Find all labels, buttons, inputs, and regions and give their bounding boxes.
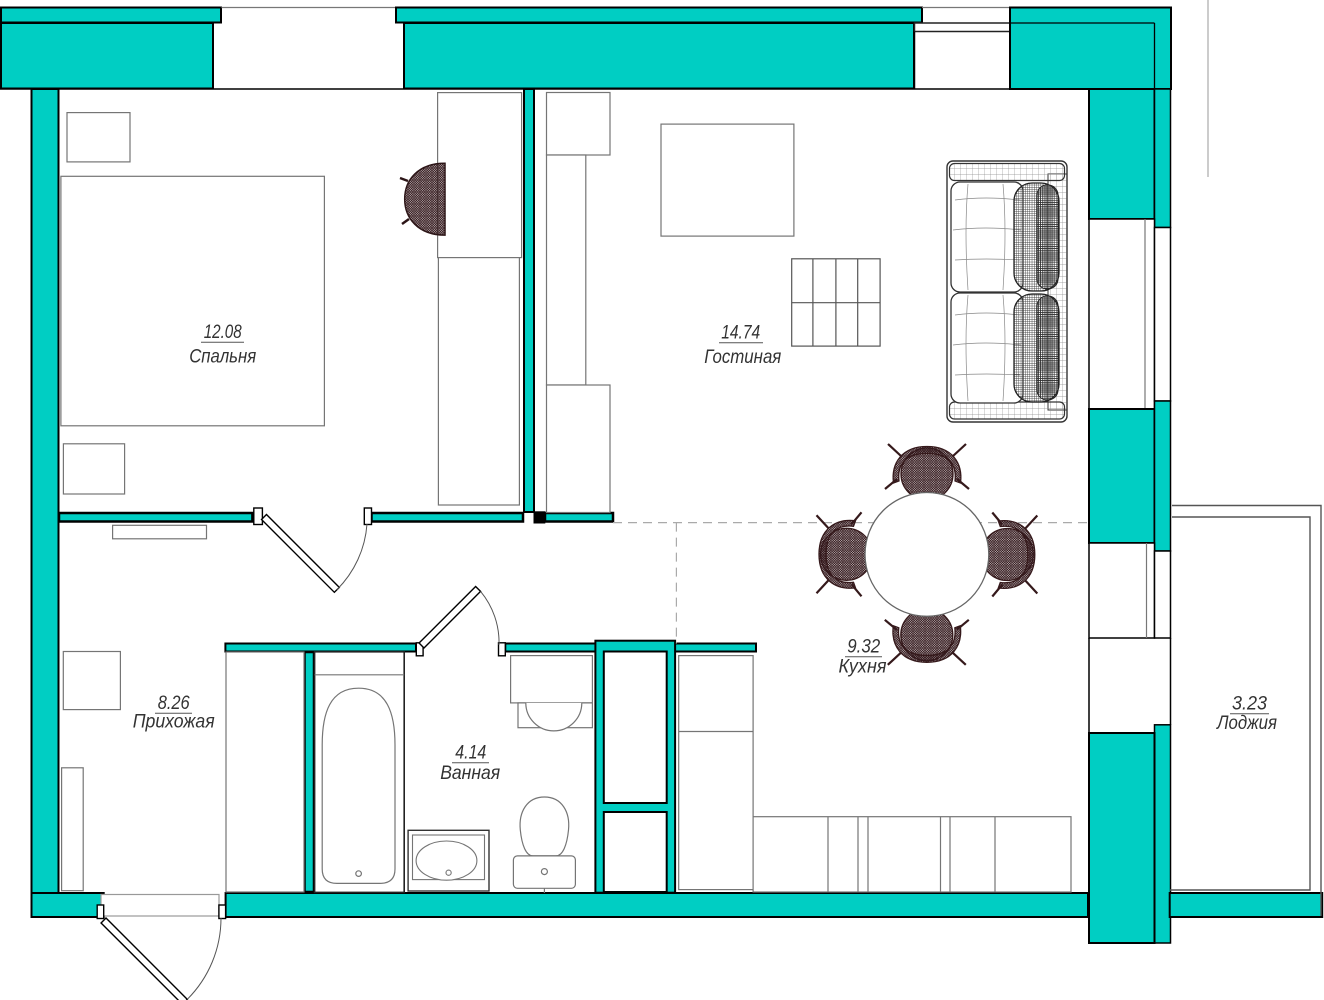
svg-text:3.23: 3.23 bbox=[1232, 694, 1267, 715]
svg-text:14.74: 14.74 bbox=[721, 323, 760, 344]
svg-text:Кухня: Кухня bbox=[839, 657, 887, 678]
svg-text:Гостиная: Гостиная bbox=[704, 347, 781, 368]
svg-text:Лоджия: Лоджия bbox=[1215, 713, 1277, 734]
svg-text:9.32: 9.32 bbox=[847, 637, 880, 658]
svg-text:12.08: 12.08 bbox=[204, 322, 242, 343]
svg-text:Спальня: Спальня bbox=[189, 347, 256, 368]
svg-text:4.14: 4.14 bbox=[455, 743, 486, 764]
svg-text:Прихожая: Прихожая bbox=[133, 712, 215, 733]
svg-text:Ванная: Ванная bbox=[440, 763, 500, 784]
